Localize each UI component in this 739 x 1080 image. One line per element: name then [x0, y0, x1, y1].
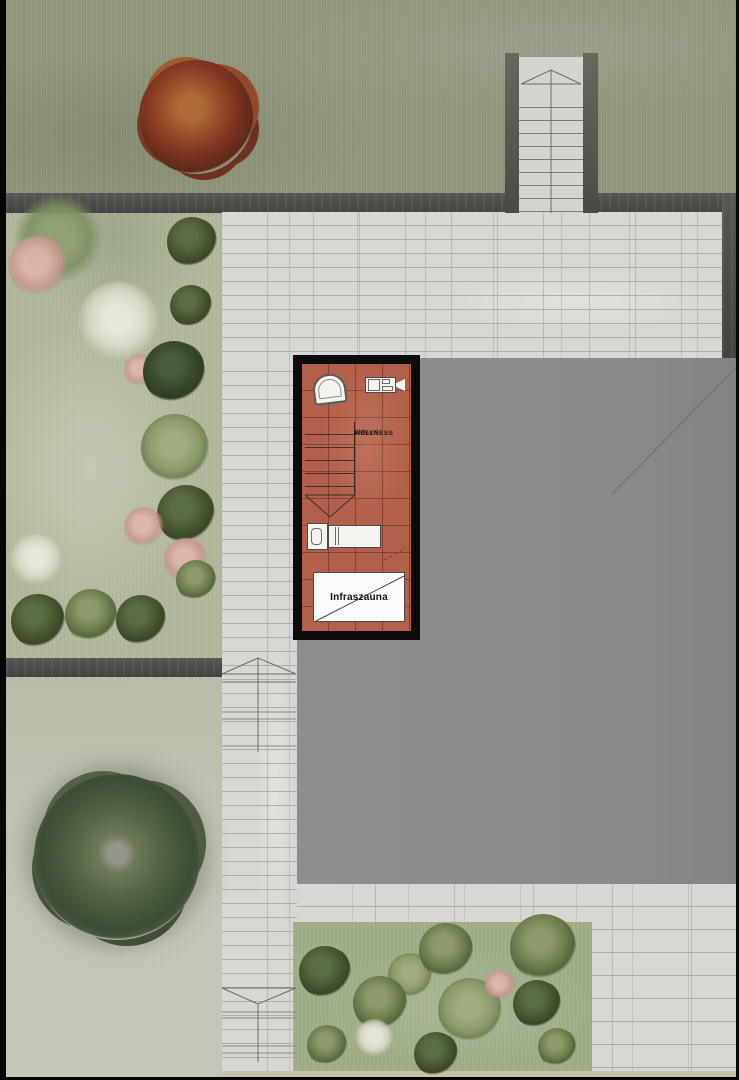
terracotta-tile-floor: WELLNESS 13.64 m² Infraszauna — [302, 364, 411, 631]
garden-patch-bottom — [293, 922, 592, 1077]
stair-corridor-wall-left — [505, 53, 519, 213]
lawn-top — [6, 0, 736, 193]
paved-walkway-left — [222, 358, 297, 1077]
dark-path-horizontal — [6, 193, 736, 213]
garden-strip-left — [6, 212, 222, 658]
stair-corridor-wall-right — [583, 53, 598, 213]
stair-arrow-icon — [302, 364, 411, 631]
wellness-room-plan: WELLNESS 13.64 m² Infraszauna — [293, 355, 420, 640]
stair-treads — [519, 95, 583, 213]
dark-path-right-edge — [722, 193, 736, 358]
exterior-stair-corridor — [519, 57, 583, 213]
dark-path-bottom-left — [6, 658, 222, 677]
paved-plaza — [222, 212, 722, 358]
site-plan-canvas: WELLNESS 13.64 m² Infraszauna — [0, 0, 739, 1080]
lawn-bottom-left — [6, 676, 222, 1077]
